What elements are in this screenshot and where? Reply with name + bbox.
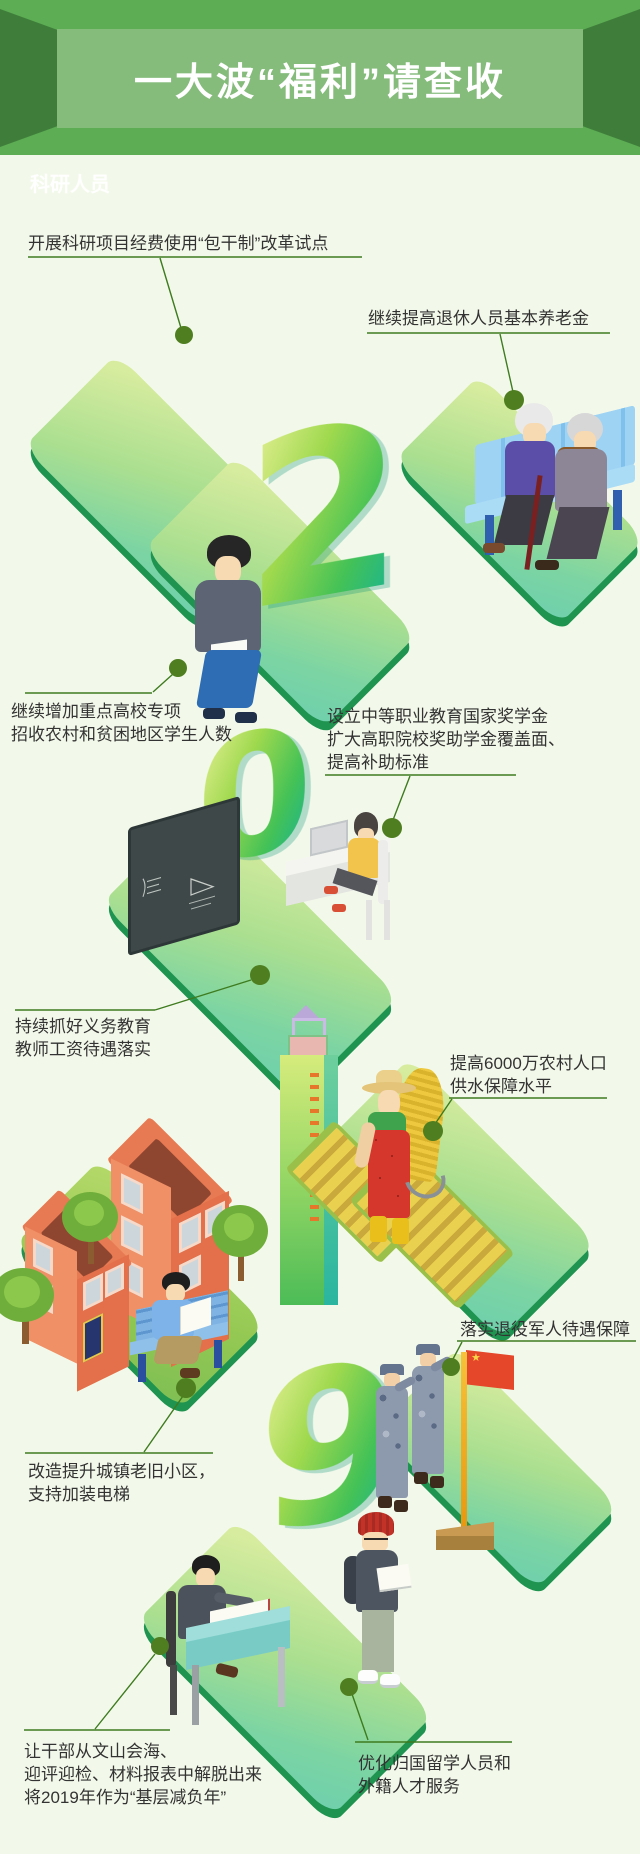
official-shoe <box>215 1663 239 1679</box>
banner-side-right <box>583 9 640 147</box>
annotation-line: 迎评迎检、材料报表中解脱出来 <box>24 1763 262 1786</box>
annotation-enrollment: 继续增加重点高校专项 招收农村和贫困地区学生人数 <box>11 700 232 746</box>
annotation-veterans: 落实退役军人待遇保障 <box>460 1318 630 1341</box>
scene-returning-student <box>348 1512 410 1707</box>
banner-side-left <box>0 9 57 147</box>
tree-foliage <box>4 1276 40 1308</box>
soldier-body <box>412 1366 444 1474</box>
scene-teacher-desk <box>286 812 401 947</box>
park-bench-leg <box>138 1354 146 1382</box>
annotation-line: 提高补助标准 <box>327 751 565 774</box>
annotation-water: 提高6000万农村人口 供水保障水平 <box>450 1052 607 1098</box>
annotation-line: 外籍人才服务 <box>358 1775 511 1798</box>
teacher-shoe <box>332 904 346 912</box>
student-pants <box>362 1610 394 1672</box>
annotation-line: 供水保障水平 <box>450 1075 607 1098</box>
desk-leg <box>278 1647 285 1707</box>
bench-leg <box>613 490 622 530</box>
scene-official-desk <box>158 1555 308 1750</box>
annotation-line: 提高6000万农村人口 <box>450 1052 607 1075</box>
grandpa-legs <box>547 507 610 559</box>
sneaker <box>358 1670 378 1684</box>
connector-pension <box>500 334 513 392</box>
water-tower-roof <box>292 1005 320 1019</box>
annotation-line: 开展科研项目经费使用“包干制”改革试点 <box>28 232 328 255</box>
flag-star-icon: ★ <box>471 1352 481 1364</box>
farmer-boot <box>370 1216 387 1242</box>
office-chair-leg <box>170 1665 177 1715</box>
annotation-line: 将2019年作为“基层减负年” <box>24 1786 262 1809</box>
connector-enrollment <box>153 674 173 692</box>
scene-retirees <box>395 385 640 595</box>
watermark-label: 科研人员 <box>30 168 110 197</box>
office-chair-back <box>166 1591 176 1667</box>
annotation-renovation: 改造提升城镇老旧小区， 支持加装电梯 <box>28 1460 215 1506</box>
window <box>121 1173 143 1214</box>
tree <box>0 1268 60 1348</box>
window <box>179 1213 201 1254</box>
reader-pants <box>153 1336 203 1364</box>
chalk-formulas <box>131 802 231 947</box>
dot-research <box>175 326 193 344</box>
glasses-icon <box>364 1538 388 1547</box>
annotation-line: 优化归国留学人员和 <box>358 1752 511 1775</box>
teacher-shoe <box>324 886 338 894</box>
soldier-boot <box>414 1472 428 1484</box>
annotation-burden: 让干部从文山会海、 迎评迎检、材料报表中解脱出来 将2019年作为“基层减负年” <box>24 1740 262 1809</box>
open-book <box>376 1564 411 1592</box>
annotation-line: 持续抓好义务教育 <box>15 1015 151 1038</box>
farmer-boot <box>392 1218 409 1244</box>
annotation-research: 开展科研项目经费使用“包干制”改革试点 <box>28 232 328 255</box>
annotation-line: 继续提高退休人员基本养老金 <box>368 307 589 330</box>
tree-foliage <box>74 1200 104 1226</box>
chair-leg <box>384 900 390 940</box>
grandma-sweater <box>505 441 555 499</box>
connector-research <box>160 258 181 328</box>
student-shoe <box>235 712 257 723</box>
annotation-teacher: 持续抓好义务教育 教师工资待遇落实 <box>15 1015 151 1061</box>
annotation-line: 改造提升城镇老旧小区， <box>28 1460 215 1483</box>
annotation-line: 落实退役军人待遇保障 <box>460 1318 630 1341</box>
annotation-line: 教师工资待遇落实 <box>15 1038 151 1061</box>
annotation-scholarship: 设立中等职业教育国家奖学金 扩大高职院校奖助学金覆盖面、 提高补助标准 <box>327 705 565 774</box>
annotation-talent: 优化归国留学人员和 外籍人才服务 <box>358 1752 511 1798</box>
soldier-boot <box>394 1500 408 1512</box>
scene-blackboard <box>128 812 234 934</box>
chair-back <box>378 840 388 904</box>
chair-leg <box>366 900 372 940</box>
reader-shoe <box>180 1368 200 1378</box>
scene-farmer <box>352 1068 447 1258</box>
desk-leg <box>192 1665 199 1725</box>
china-flag: ★ <box>466 1350 514 1390</box>
banner-panel: 一大波“福利”请查收 <box>57 29 583 128</box>
blackboard <box>128 796 240 956</box>
tree <box>62 1192 122 1268</box>
page-title: 一大波“福利”请查收 <box>134 51 506 106</box>
scene-bench-reader <box>122 1272 237 1392</box>
annotation-line: 继续增加重点高校专项 <box>11 700 232 723</box>
park-bench-leg <box>214 1340 222 1368</box>
annotation-line: 招收农村和贫困地区学生人数 <box>11 723 232 746</box>
window <box>121 1215 143 1256</box>
annotation-line: 让干部从文山会海、 <box>24 1740 262 1763</box>
grandma-shoe <box>483 543 505 553</box>
tree-foliage <box>224 1213 254 1241</box>
infographic-canvas: 2 0 9 <box>0 0 640 1854</box>
door <box>83 1313 103 1363</box>
flag-pole <box>461 1352 467 1534</box>
grandpa-coat <box>555 449 607 511</box>
sneaker <box>380 1674 400 1688</box>
soldier-boot <box>378 1496 392 1508</box>
header-banner: 一大波“福利”请查收 <box>0 0 640 155</box>
connector-burden <box>95 1654 155 1729</box>
soldier-boot <box>430 1476 444 1488</box>
annotation-pension: 继续提高退休人员基本养老金 <box>368 307 589 330</box>
annotation-line: 扩大高职院校奖助学金覆盖面、 <box>327 728 565 751</box>
window <box>83 1273 103 1311</box>
annotation-line: 设立中等职业教育国家奖学金 <box>327 705 565 728</box>
flag-base <box>436 1536 494 1550</box>
annotation-line: 支持加装电梯 <box>28 1483 215 1506</box>
grandpa-shoe <box>535 560 559 570</box>
soldier-body <box>376 1386 408 1498</box>
